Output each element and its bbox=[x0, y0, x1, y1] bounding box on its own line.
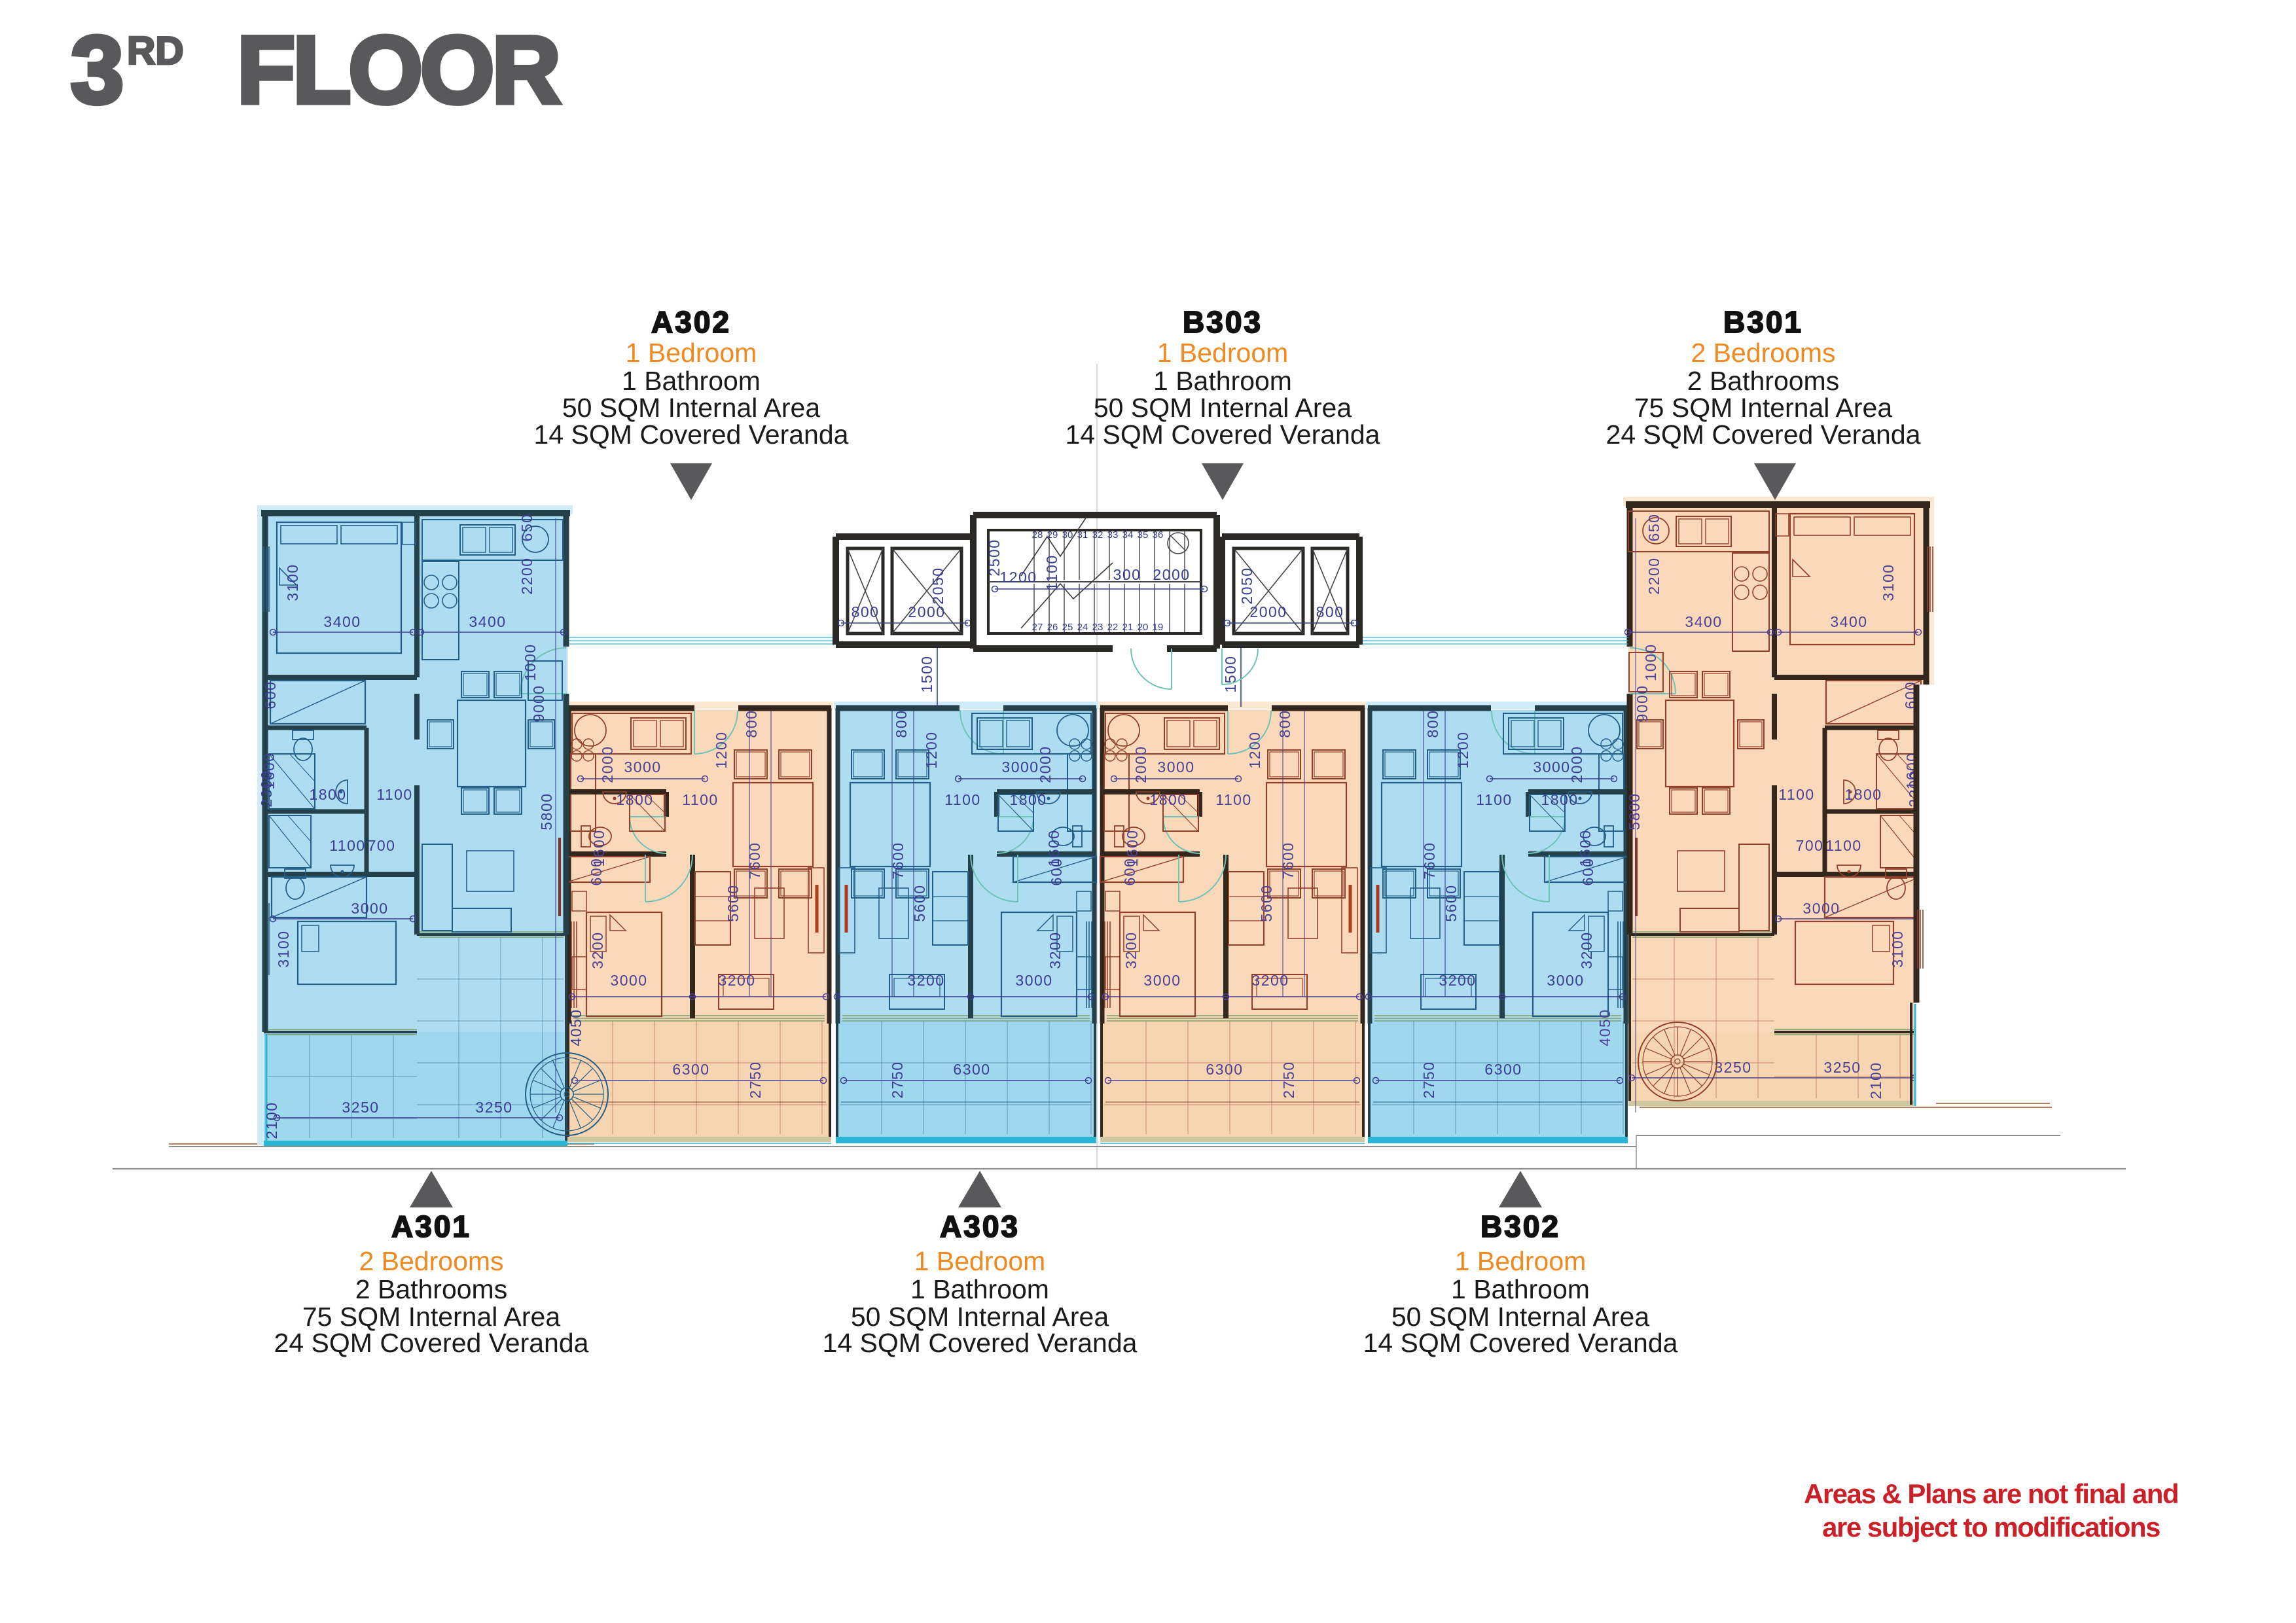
svg-text:3000: 3000 bbox=[624, 758, 661, 776]
svg-text:2200: 2200 bbox=[518, 557, 535, 594]
svg-text:2750: 2750 bbox=[889, 1061, 906, 1098]
svg-text:2 Bathrooms: 2 Bathrooms bbox=[355, 1274, 507, 1304]
svg-text:1100: 1100 bbox=[1215, 791, 1251, 808]
svg-text:30: 30 bbox=[1062, 529, 1073, 541]
svg-text:1800: 1800 bbox=[1541, 791, 1578, 808]
svg-text:1100: 1100 bbox=[329, 837, 365, 854]
svg-text:3250: 3250 bbox=[1823, 1059, 1861, 1076]
svg-text:650: 650 bbox=[518, 514, 535, 542]
svg-text:3000: 3000 bbox=[1157, 758, 1194, 776]
svg-text:2300: 2300 bbox=[258, 770, 275, 807]
svg-text:3400: 3400 bbox=[1830, 613, 1867, 630]
svg-text:7600: 7600 bbox=[1280, 842, 1297, 879]
svg-text:3400: 3400 bbox=[1685, 613, 1722, 630]
svg-text:800: 800 bbox=[852, 603, 880, 620]
svg-text:1100: 1100 bbox=[1778, 786, 1814, 803]
svg-text:RD: RD bbox=[127, 29, 184, 73]
svg-text:3000: 3000 bbox=[610, 972, 647, 989]
svg-text:3200: 3200 bbox=[1047, 931, 1064, 969]
svg-text:1 Bedroom: 1 Bedroom bbox=[1157, 338, 1289, 368]
svg-text:3000: 3000 bbox=[1803, 900, 1840, 917]
svg-text:4050: 4050 bbox=[567, 1008, 584, 1046]
svg-text:A301: A301 bbox=[391, 1209, 471, 1243]
svg-text:4050: 4050 bbox=[1596, 1008, 1613, 1046]
svg-text:700: 700 bbox=[368, 837, 396, 854]
svg-text:600: 600 bbox=[588, 858, 605, 886]
svg-text:3000: 3000 bbox=[1143, 972, 1181, 989]
svg-text:2 Bedrooms: 2 Bedrooms bbox=[1691, 338, 1835, 368]
svg-text:3200: 3200 bbox=[1439, 972, 1476, 989]
svg-text:1100: 1100 bbox=[376, 786, 412, 803]
svg-text:800: 800 bbox=[1424, 710, 1441, 738]
svg-text:50 SQM Internal Area: 50 SQM Internal Area bbox=[1094, 393, 1352, 423]
svg-text:6300: 6300 bbox=[672, 1061, 709, 1078]
svg-text:21: 21 bbox=[1122, 622, 1134, 633]
svg-text:3100: 3100 bbox=[275, 930, 292, 967]
svg-text:3250: 3250 bbox=[1714, 1059, 1751, 1076]
svg-text:6300: 6300 bbox=[1206, 1061, 1243, 1078]
svg-text:3100: 3100 bbox=[1889, 930, 1906, 967]
svg-text:33: 33 bbox=[1107, 529, 1119, 541]
svg-text:31: 31 bbox=[1077, 529, 1088, 541]
svg-text:1100: 1100 bbox=[1476, 791, 1512, 808]
svg-text:3200: 3200 bbox=[1251, 972, 1289, 989]
svg-text:1100: 1100 bbox=[682, 791, 718, 808]
svg-text:19: 19 bbox=[1153, 622, 1164, 633]
svg-text:1100: 1100 bbox=[1825, 837, 1861, 854]
svg-text:75 SQM Internal Area: 75 SQM Internal Area bbox=[1634, 393, 1892, 423]
svg-text:800: 800 bbox=[893, 710, 910, 738]
svg-text:2750: 2750 bbox=[747, 1061, 764, 1098]
svg-text:1 Bedroom: 1 Bedroom bbox=[1455, 1246, 1587, 1276]
svg-text:800: 800 bbox=[743, 710, 760, 738]
svg-text:650: 650 bbox=[1645, 514, 1662, 542]
svg-text:25: 25 bbox=[1062, 622, 1073, 633]
svg-text:3200: 3200 bbox=[589, 931, 606, 969]
svg-text:23: 23 bbox=[1092, 622, 1103, 633]
svg-text:300: 300 bbox=[1113, 566, 1141, 583]
svg-text:1200: 1200 bbox=[1454, 731, 1471, 768]
svg-text:1500: 1500 bbox=[918, 655, 935, 692]
svg-text:are subject to modifications: are subject to modifications bbox=[1822, 1512, 2160, 1543]
svg-text:A303: A303 bbox=[940, 1209, 1020, 1243]
svg-text:24 SQM Covered Veranda: 24 SQM Covered Veranda bbox=[1606, 419, 1921, 450]
svg-text:700: 700 bbox=[1796, 837, 1824, 854]
svg-text:5600: 5600 bbox=[1258, 884, 1275, 921]
svg-text:2050: 2050 bbox=[1238, 567, 1255, 604]
svg-text:50 SQM Internal Area: 50 SQM Internal Area bbox=[562, 393, 820, 423]
svg-text:1100: 1100 bbox=[944, 791, 980, 808]
svg-text:3: 3 bbox=[71, 16, 124, 123]
svg-text:3200: 3200 bbox=[1122, 931, 1139, 969]
svg-text:22: 22 bbox=[1107, 622, 1119, 633]
svg-text:B302: B302 bbox=[1480, 1209, 1560, 1243]
svg-text:B303: B303 bbox=[1183, 305, 1263, 339]
svg-text:14 SQM Covered Veranda: 14 SQM Covered Veranda bbox=[1363, 1328, 1678, 1358]
svg-text:29: 29 bbox=[1047, 529, 1058, 541]
svg-text:2000: 2000 bbox=[1037, 745, 1054, 783]
svg-text:5800: 5800 bbox=[1626, 793, 1643, 830]
svg-text:20: 20 bbox=[1138, 622, 1149, 633]
svg-text:9000: 9000 bbox=[530, 685, 547, 722]
svg-text:1200: 1200 bbox=[1246, 731, 1263, 768]
svg-text:A302: A302 bbox=[651, 305, 731, 339]
svg-text:3250: 3250 bbox=[342, 1099, 379, 1116]
svg-text:2000: 2000 bbox=[599, 745, 616, 783]
svg-text:1000: 1000 bbox=[522, 643, 539, 681]
svg-text:3000: 3000 bbox=[351, 900, 388, 917]
svg-text:1 Bathroom: 1 Bathroom bbox=[910, 1274, 1049, 1304]
svg-text:7600: 7600 bbox=[746, 842, 763, 879]
svg-text:1200: 1200 bbox=[999, 569, 1037, 586]
svg-text:26: 26 bbox=[1047, 622, 1058, 633]
svg-text:6300: 6300 bbox=[953, 1061, 990, 1078]
svg-text:1 Bedroom: 1 Bedroom bbox=[626, 338, 757, 368]
svg-text:1 Bedroom: 1 Bedroom bbox=[914, 1246, 1046, 1276]
svg-text:800: 800 bbox=[1316, 603, 1344, 620]
svg-text:3200: 3200 bbox=[718, 972, 755, 989]
svg-text:2200: 2200 bbox=[1645, 557, 1662, 594]
svg-text:14 SQM Covered Veranda: 14 SQM Covered Veranda bbox=[534, 419, 849, 450]
svg-text:35: 35 bbox=[1138, 529, 1149, 541]
svg-text:3400: 3400 bbox=[469, 613, 506, 630]
svg-text:2000: 2000 bbox=[908, 603, 945, 620]
svg-text:9000: 9000 bbox=[1634, 685, 1651, 722]
svg-text:3250: 3250 bbox=[475, 1099, 512, 1116]
svg-text:1100: 1100 bbox=[1043, 554, 1060, 590]
svg-text:2000: 2000 bbox=[1132, 745, 1149, 783]
svg-text:1800: 1800 bbox=[616, 791, 653, 808]
svg-text:600: 600 bbox=[1048, 858, 1065, 886]
svg-text:3400: 3400 bbox=[323, 613, 361, 630]
svg-text:2100: 2100 bbox=[1867, 1061, 1884, 1099]
svg-text:1800: 1800 bbox=[1149, 791, 1187, 808]
svg-text:3100: 3100 bbox=[1880, 563, 1897, 601]
svg-text:2 Bedrooms: 2 Bedrooms bbox=[359, 1246, 503, 1276]
svg-text:B301: B301 bbox=[1723, 305, 1803, 339]
svg-text:5800: 5800 bbox=[538, 793, 555, 830]
svg-text:1200: 1200 bbox=[923, 731, 940, 768]
svg-text:5600: 5600 bbox=[725, 884, 742, 921]
svg-text:24 SQM Covered Veranda: 24 SQM Covered Veranda bbox=[274, 1328, 589, 1358]
svg-text:1000: 1000 bbox=[1642, 643, 1659, 681]
svg-text:3000: 3000 bbox=[1015, 972, 1052, 989]
svg-text:3200: 3200 bbox=[907, 972, 944, 989]
svg-text:600: 600 bbox=[262, 681, 279, 709]
svg-text:14 SQM Covered Veranda: 14 SQM Covered Veranda bbox=[823, 1328, 1138, 1358]
svg-text:28: 28 bbox=[1032, 529, 1043, 541]
svg-text:3200: 3200 bbox=[1578, 931, 1595, 969]
svg-text:27: 27 bbox=[1032, 622, 1043, 633]
svg-text:600: 600 bbox=[1579, 858, 1596, 886]
svg-text:600: 600 bbox=[1121, 858, 1138, 886]
svg-text:3100: 3100 bbox=[284, 563, 301, 601]
svg-text:32: 32 bbox=[1092, 529, 1103, 541]
svg-text:2000: 2000 bbox=[1568, 745, 1585, 783]
svg-text:2750: 2750 bbox=[1280, 1061, 1297, 1098]
svg-text:FLOOR: FLOOR bbox=[237, 16, 559, 123]
svg-text:3000: 3000 bbox=[1533, 758, 1570, 776]
svg-text:3000: 3000 bbox=[1001, 758, 1039, 776]
svg-text:1800: 1800 bbox=[1844, 786, 1882, 803]
svg-text:2 Bathrooms: 2 Bathrooms bbox=[1687, 366, 1839, 396]
svg-text:2050: 2050 bbox=[929, 567, 946, 604]
svg-text:3000: 3000 bbox=[1547, 972, 1584, 989]
svg-text:1 Bathroom: 1 Bathroom bbox=[1153, 366, 1292, 396]
svg-text:2750: 2750 bbox=[1420, 1061, 1437, 1098]
svg-text:1200: 1200 bbox=[713, 731, 730, 768]
svg-text:Areas & Plans are not final an: Areas & Plans are not final and bbox=[1804, 1478, 2178, 1509]
svg-text:1 Bathroom: 1 Bathroom bbox=[622, 366, 761, 396]
svg-text:2000: 2000 bbox=[1249, 603, 1287, 620]
svg-text:6300: 6300 bbox=[1484, 1061, 1522, 1078]
svg-text:800: 800 bbox=[1276, 710, 1293, 738]
svg-text:1800: 1800 bbox=[1009, 791, 1047, 808]
svg-text:36: 36 bbox=[1153, 529, 1164, 541]
svg-text:14 SQM Covered Veranda: 14 SQM Covered Veranda bbox=[1066, 419, 1380, 450]
svg-text:1500: 1500 bbox=[1222, 655, 1239, 692]
svg-text:1 Bathroom: 1 Bathroom bbox=[1451, 1274, 1590, 1304]
svg-text:34: 34 bbox=[1122, 529, 1134, 541]
svg-text:24: 24 bbox=[1077, 622, 1088, 633]
svg-text:2000: 2000 bbox=[1153, 566, 1190, 583]
svg-text:1800: 1800 bbox=[309, 786, 346, 803]
